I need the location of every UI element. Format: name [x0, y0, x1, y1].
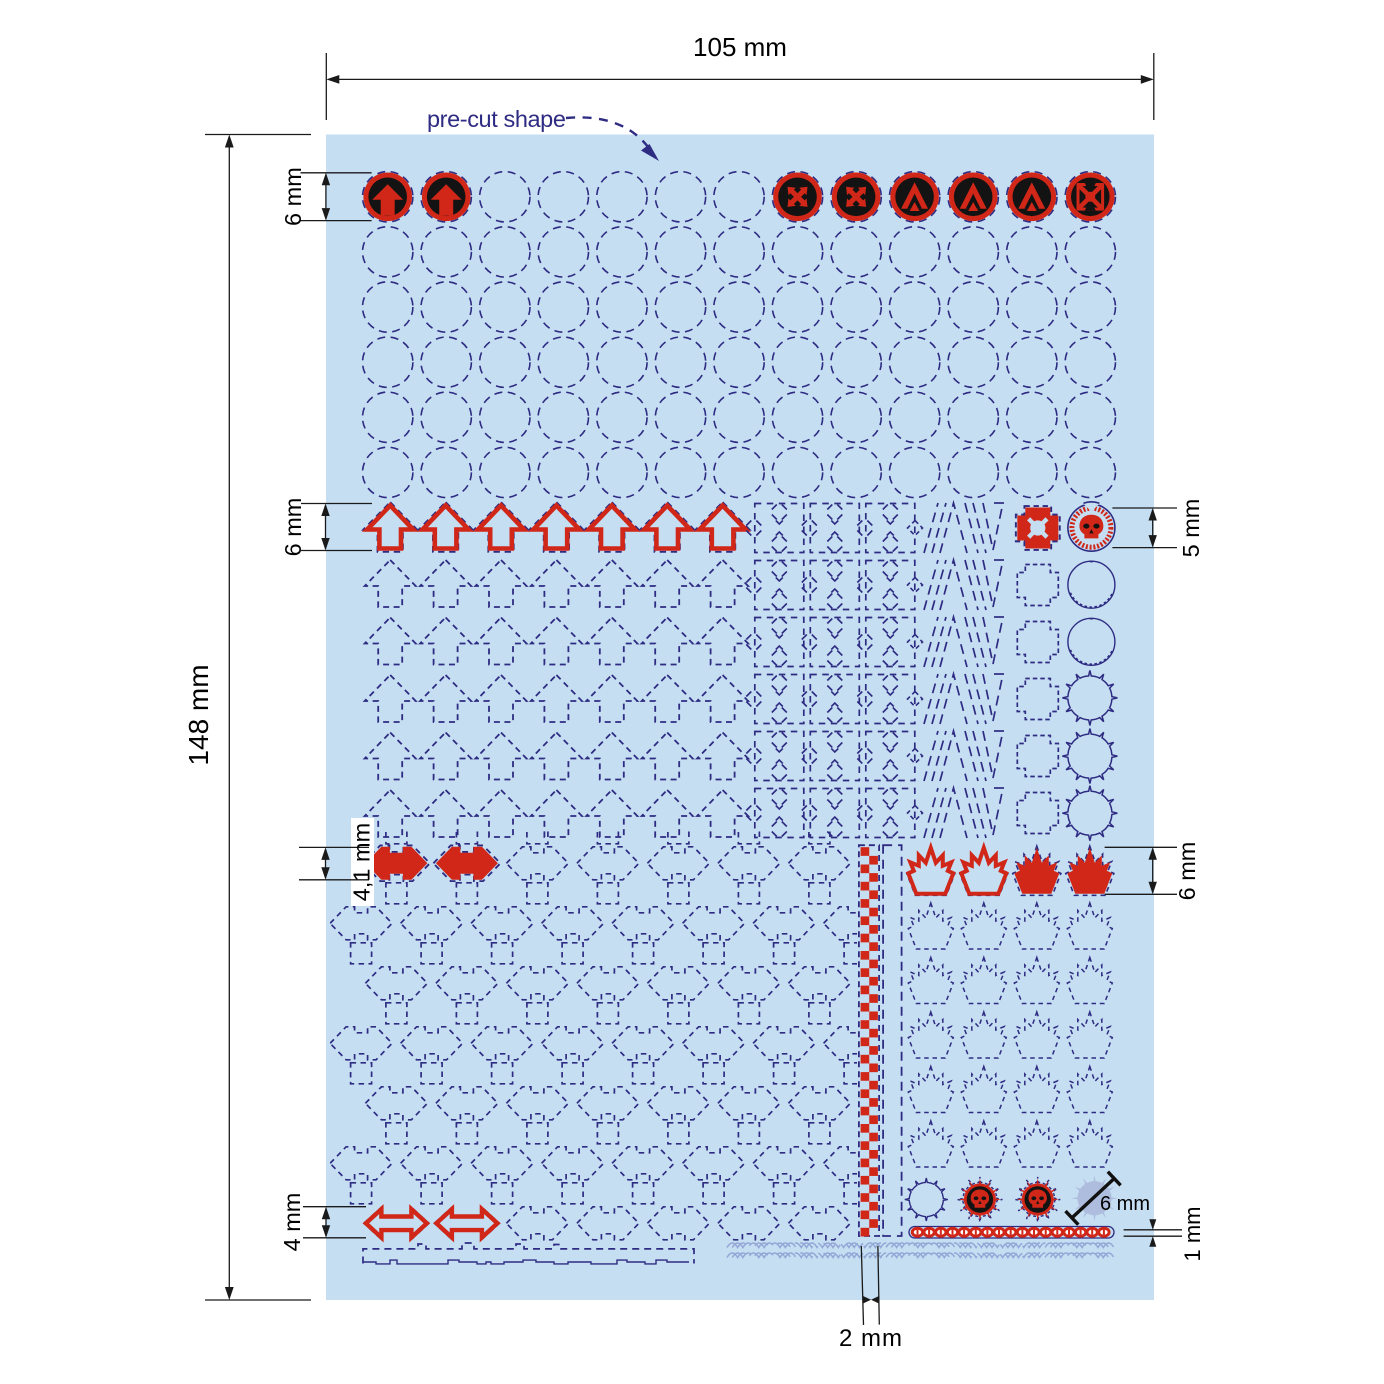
- svg-text:6 mm: 6 mm: [1174, 842, 1200, 901]
- svg-text:6 mm: 6 mm: [280, 167, 306, 226]
- svg-text:5 mm: 5 mm: [1178, 499, 1204, 558]
- svg-text:2 mm: 2 mm: [839, 1325, 903, 1352]
- svg-text:148 mm: 148 mm: [183, 664, 214, 765]
- svg-text:6 mm: 6 mm: [280, 498, 306, 557]
- svg-text:4,1 mm: 4,1 mm: [349, 823, 375, 901]
- svg-text:pre-cut shape: pre-cut shape: [427, 106, 566, 132]
- svg-text:1 mm: 1 mm: [1180, 1207, 1205, 1262]
- svg-text:105 mm: 105 mm: [693, 32, 787, 62]
- svg-text:6 mm: 6 mm: [1100, 1193, 1150, 1215]
- svg-text:4 mm: 4 mm: [279, 1193, 305, 1252]
